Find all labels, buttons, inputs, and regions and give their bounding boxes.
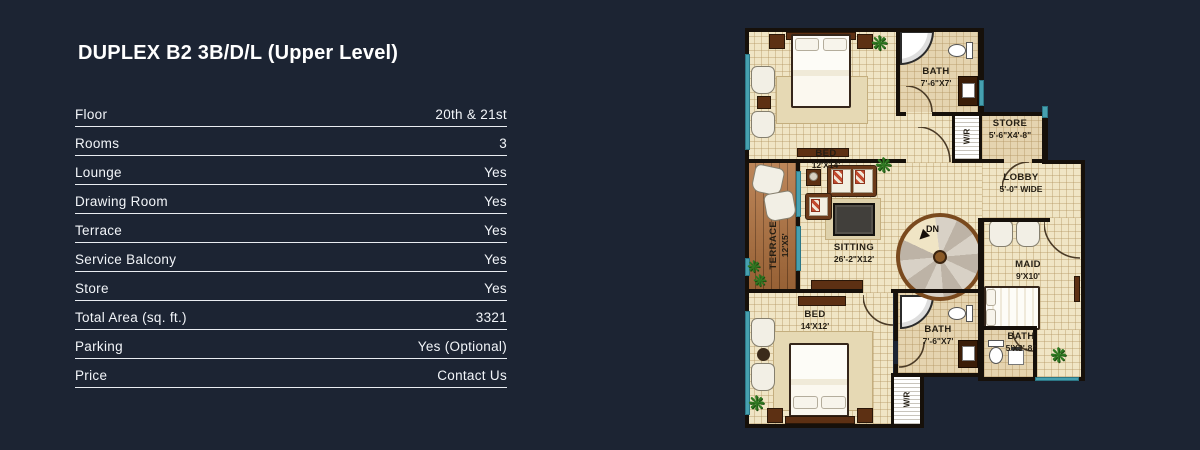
room-label-bath2: BATH 7'-6"X7' (898, 324, 978, 347)
table-row: StoreYes (75, 272, 507, 301)
wall (984, 326, 1037, 330)
room-label-store: STORE 5'-6"X4'-8" (966, 118, 1054, 141)
row-value: Yes (Optional) (418, 339, 507, 354)
pillow (821, 396, 846, 409)
pillow (986, 289, 996, 306)
plant-icon: ❋ (753, 274, 766, 290)
round-table (757, 348, 770, 361)
table-row: Service BalconyYes (75, 243, 507, 272)
plant-icon: ❋ (875, 156, 892, 176)
row-value: 3 (499, 136, 507, 151)
row-value: Yes (484, 281, 507, 296)
sliding-door (796, 171, 801, 217)
armchair (751, 318, 775, 347)
wall (1032, 159, 1048, 163)
row-value: 20th & 21st (435, 107, 507, 122)
wall (796, 217, 800, 226)
toilet (948, 307, 966, 320)
room-label-bath1: BATH 7'-6"X7' (896, 66, 976, 89)
headboard (785, 416, 855, 424)
toilet (948, 44, 966, 57)
row-value: Yes (484, 223, 507, 238)
row-value: Contact Us (437, 368, 507, 383)
room-label-bed2: BED 14'X12' (775, 309, 855, 332)
wr2-label: W/R (902, 392, 911, 408)
row-label: Rooms (75, 136, 119, 151)
plant-icon: ❋ (871, 34, 888, 54)
row-label: Floor (75, 107, 107, 122)
wall (796, 271, 800, 293)
floor-plan: W/R W/R DN ❋ ❋ ❋ ❋ ❋ (745, 28, 1085, 430)
row-value: 3321 (476, 310, 507, 325)
window (979, 80, 984, 106)
row-label: Terrace (75, 223, 122, 238)
page-title: DUPLEX B2 3B/D/L (Upper Level) (78, 42, 398, 65)
armchair (751, 66, 775, 94)
room-label-terrace: TERRACE 12'X5' (768, 210, 791, 280)
wall (978, 218, 984, 381)
side-table (757, 96, 771, 109)
wall (745, 424, 924, 428)
window (1042, 106, 1048, 118)
door-arc (918, 127, 951, 163)
pillow (986, 309, 996, 326)
throw-pillow (811, 199, 820, 212)
room-label-sitting: SITTING 26'-2"X12' (814, 242, 894, 265)
table-row: Rooms3 (75, 127, 507, 156)
wall (891, 289, 982, 293)
pillow (795, 38, 819, 51)
row-label: Total Area (sq. ft.) (75, 310, 187, 325)
coffee-table (833, 203, 875, 236)
sliding-door (796, 226, 801, 271)
spec-table: Floor20th & 21st Rooms3 LoungeYes Drawin… (75, 98, 507, 388)
window (1035, 377, 1079, 381)
stair-hub (933, 250, 947, 264)
armchair (751, 111, 775, 138)
row-label: Service Balcony (75, 252, 176, 267)
room-label-maid-bath: BATH 5'X3'-8" (981, 331, 1061, 354)
wall (932, 112, 1048, 116)
wall (896, 112, 906, 116)
tv-console (798, 296, 846, 306)
sink (962, 346, 975, 361)
toilet-tank (966, 42, 973, 59)
table-row: Total Area (sq. ft.)3321 (75, 301, 507, 330)
room-label-lobby: LOBBY 5'-0" WIDE (981, 172, 1061, 195)
table-row: Floor20th & 21st (75, 98, 507, 127)
wall (745, 28, 984, 32)
row-value: Yes (484, 165, 507, 180)
throw-pillow (855, 170, 865, 184)
lamp (809, 172, 818, 181)
wall (920, 373, 924, 428)
room-label-bed1: BED 12'X14' (786, 148, 866, 171)
row-label: Price (75, 368, 107, 383)
stair-dn-label: DN (926, 224, 939, 234)
row-label: Parking (75, 339, 123, 354)
throw-pillow (833, 170, 843, 184)
wall (1081, 160, 1085, 381)
table-row: LoungeYes (75, 156, 507, 185)
door-arc (863, 295, 894, 326)
door-arc (1044, 222, 1081, 259)
armchair (989, 220, 1013, 247)
toilet-tank (966, 305, 973, 322)
row-value: Yes (484, 252, 507, 267)
armchair (751, 363, 775, 391)
pillow (823, 38, 847, 51)
nightstand (857, 408, 873, 423)
pillow (793, 396, 818, 409)
row-value: Yes (484, 194, 507, 209)
wall-shelf (1074, 276, 1080, 302)
row-label: Store (75, 281, 109, 296)
wall (891, 373, 982, 377)
wall (952, 159, 1004, 163)
row-label: Drawing Room (75, 194, 168, 209)
row-label: Lounge (75, 165, 122, 180)
plant-icon: ❋ (1050, 346, 1067, 366)
armchair (1016, 220, 1040, 247)
nightstand (767, 408, 783, 423)
room-label-maid: MAID 9'X10' (988, 259, 1068, 282)
plant-icon: ❋ (748, 394, 765, 414)
table-row: ParkingYes (Optional) (75, 330, 507, 359)
table-row: TerraceYes (75, 214, 507, 243)
table-row: PriceContact Us (75, 359, 507, 388)
wall (1042, 160, 1085, 164)
door-arc (906, 86, 933, 113)
table-row: Drawing RoomYes (75, 185, 507, 214)
window (745, 54, 750, 150)
nightstand (769, 34, 785, 49)
wall (978, 218, 1050, 222)
